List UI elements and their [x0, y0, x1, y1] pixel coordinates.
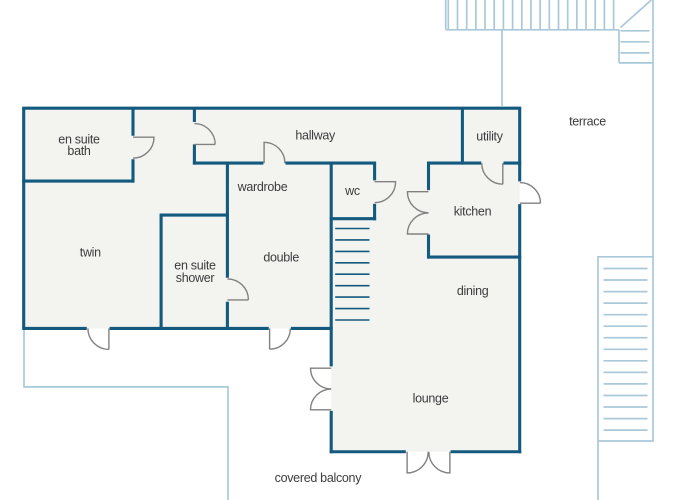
svg-text:utility: utility: [476, 130, 503, 144]
svg-text:double: double: [263, 251, 299, 265]
svg-text:hallway: hallway: [295, 129, 336, 143]
svg-text:wardrobe: wardrobe: [237, 180, 288, 194]
svg-text:lounge: lounge: [413, 391, 449, 405]
svg-text:kitchen: kitchen: [454, 204, 492, 218]
svg-text:twin: twin: [80, 246, 101, 260]
svg-text:terrace: terrace: [569, 115, 606, 129]
svg-text:dining: dining: [457, 284, 489, 298]
svg-text:en suiteshower: en suiteshower: [174, 259, 216, 285]
svg-text:covered balcony: covered balcony: [275, 471, 363, 485]
svg-text:wc: wc: [344, 184, 360, 198]
